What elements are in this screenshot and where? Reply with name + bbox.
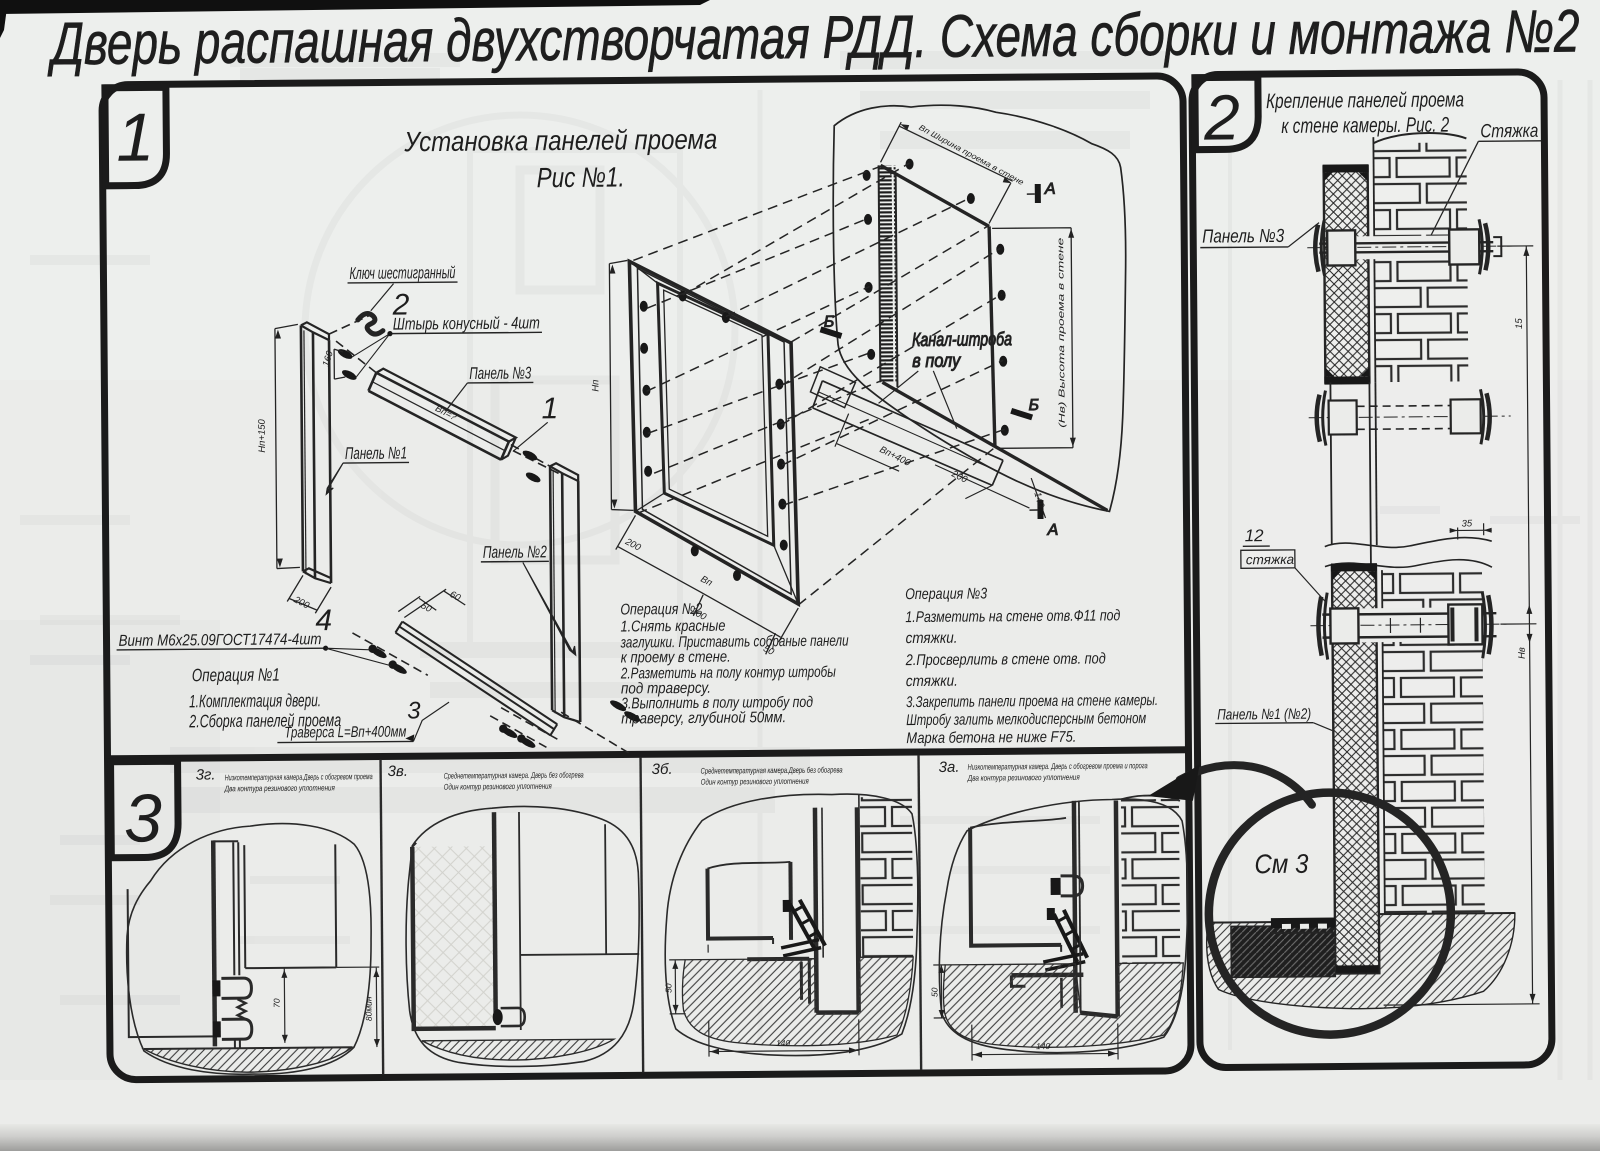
- svg-text:Б: Б: [1029, 397, 1040, 414]
- svg-text:Среднетемпературная камера. Дв: Среднетемпературная камера. Дверь без об…: [444, 770, 584, 780]
- svg-text:(Нв) Высота проема в стене: (Нв) Высота проема в стене: [1055, 237, 1067, 428]
- svg-text:70: 70: [272, 998, 282, 1008]
- svg-text:Операция №3: Операция №3: [905, 585, 987, 603]
- svg-text:1: 1: [116, 99, 154, 175]
- svg-text:Дверь распашная двухстворчатая: Дверь распашная двухстворчатая РДД. Схем…: [47, 0, 1580, 77]
- svg-text:Винт М6х25.09ГОСТ17474-4шт: Винт М6х25.09ГОСТ17474-4шт: [118, 631, 321, 650]
- svg-text:Панель №1 (№2): Панель №1 (№2): [1217, 706, 1311, 724]
- svg-text:50: 50: [663, 983, 673, 993]
- svg-text:в полу: в полу: [912, 351, 961, 372]
- svg-text:Два контура резинового уплотне: Два контура резинового уплотнения: [224, 783, 335, 793]
- svg-text:Марка бетона не ниже F75.: Марка бетона не ниже F75.: [906, 729, 1076, 747]
- svg-text:Нп+150: Нп+150: [257, 418, 268, 452]
- svg-text:Нп: Нп: [590, 379, 601, 392]
- svg-text:Среднетемпературная камера.Две: Среднетемпературная камера.Дверь без обо…: [701, 765, 843, 775]
- svg-text:Низкотемпературная камера. Две: Низкотемпературная камера. Дверь с обогр…: [968, 761, 1148, 772]
- svg-text:1: 1: [541, 392, 558, 425]
- svg-text:См 3: См 3: [1254, 849, 1308, 879]
- svg-text:Б: Б: [824, 314, 835, 331]
- svg-text:2: 2: [1203, 81, 1240, 153]
- svg-text:3: 3: [407, 697, 421, 724]
- svg-text:А: А: [1047, 522, 1059, 539]
- svg-text:Панель №3: Панель №3: [469, 363, 532, 383]
- svg-text:Два контура резинового уплотне: Два контура резинового уплотнения: [967, 773, 1080, 783]
- svg-text:3в.: 3в.: [388, 763, 408, 780]
- svg-text:стяжка: стяжка: [1246, 552, 1295, 567]
- svg-text:35: 35: [1462, 518, 1473, 529]
- svg-text:140: 140: [1036, 1041, 1051, 1051]
- svg-text:Панель №3: Панель №3: [1202, 226, 1285, 248]
- svg-text:15: 15: [1514, 318, 1525, 329]
- svg-text:Рис №1.: Рис №1.: [537, 161, 625, 193]
- svg-text:12: 12: [1245, 526, 1265, 545]
- svg-text:к стене камеры. Рис. 2: к стене камеры. Рис. 2: [1281, 114, 1449, 138]
- svg-text:Операция №2: Операция №2: [620, 601, 702, 619]
- svg-text:Стяжка: Стяжка: [1480, 121, 1538, 142]
- svg-text:А: А: [1044, 181, 1056, 198]
- svg-text:3а.: 3а.: [939, 759, 960, 776]
- svg-text:1.Комплектация двери.: 1.Комплектация двери.: [189, 690, 321, 711]
- svg-text:Крепление панелей проема: Крепление панелей проема: [1266, 88, 1464, 113]
- svg-text:1.Разметить на стене отв.Ф11 п: 1.Разметить на стене отв.Ф11 под: [905, 607, 1120, 626]
- svg-text:Штробу залить мелкодисперсным: Штробу залить мелкодисперсным бетоном: [906, 710, 1146, 729]
- svg-text:стяжки.: стяжки.: [905, 630, 957, 647]
- svg-text:Панель №1: Панель №1: [345, 443, 407, 463]
- svg-text:Низкотемпературная камера.Двер: Низкотемпературная камера.Дверь с обогре…: [225, 772, 373, 782]
- svg-text:Операция №1: Операция №1: [192, 665, 280, 686]
- svg-text:Канал-штроба: Канал-штроба: [912, 329, 1012, 351]
- svg-text:2.Просверлить в стене отв. п: 2.Просверлить в стене отв. под: [905, 650, 1106, 669]
- svg-text:3г.: 3г.: [196, 766, 216, 783]
- svg-text:Панель №2: Панель №2: [483, 542, 548, 562]
- svg-text:140: 140: [776, 1038, 791, 1048]
- svg-text:80мин: 80мин: [364, 996, 374, 1021]
- svg-text:Установка панелей проема: Установка панелей проема: [403, 124, 717, 158]
- svg-text:траверсу, глубиной 50мм.: траверсу, глубиной 50мм.: [621, 709, 786, 727]
- svg-text:Нв: Нв: [1517, 647, 1528, 659]
- svg-text:стяжки.: стяжки.: [906, 673, 958, 690]
- svg-text:Один контур резинового уплотне: Один контур резинового уплотнения: [444, 782, 553, 792]
- svg-text:Штырь конусный - 4шт: Штырь конусный - 4шт: [393, 313, 540, 333]
- svg-text:Ключ шестигранный: Ключ шестигранный: [349, 263, 455, 283]
- svg-text:3: 3: [124, 780, 163, 856]
- svg-text:50: 50: [929, 987, 939, 997]
- svg-text:3.Закрепить панели проема на с: 3.Закрепить панели проема на стене камер…: [906, 692, 1158, 711]
- svg-text:3б.: 3б.: [652, 761, 673, 778]
- svg-text:Траверса L=Вп+400мм: Траверса L=Вп+400мм: [284, 724, 406, 742]
- svg-text:Один контур резинового уплотне: Один контур резинового уплотнения: [701, 777, 810, 787]
